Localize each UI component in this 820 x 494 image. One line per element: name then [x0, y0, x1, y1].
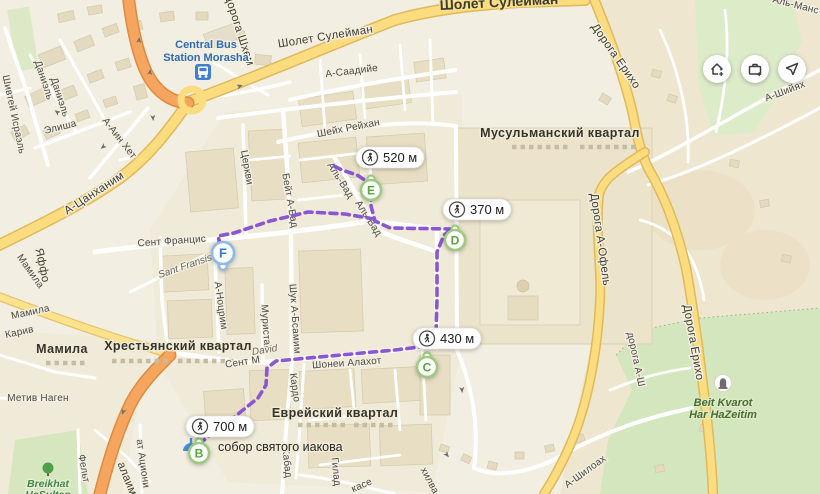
temple-mount-plaza [456, 128, 652, 344]
distance-badge-430[interactable]: 430 м [413, 328, 481, 349]
svg-text:370 м: 370 м [470, 202, 504, 217]
pedestrian-icon [193, 419, 208, 434]
bus-icon[interactable] [195, 64, 211, 80]
map-canvas[interactable]: Шолет Сулейман Шолет Сулейман Дорога Шхе… [0, 0, 820, 494]
add-work-button[interactable] [741, 55, 769, 83]
add-home-button[interactable] [703, 55, 731, 83]
distance-badge-700[interactable]: 700 м [186, 416, 254, 437]
district-label-jewish-quarter: Еврейский квартал [272, 406, 398, 420]
svg-text:430 м: 430 м [440, 331, 474, 346]
tombstone-icon [715, 375, 732, 392]
beit-kvarot-label-line2: Har HaZeitim [689, 409, 757, 421]
locate-button[interactable] [778, 55, 806, 83]
bus-station-label-line2: Station Morasha [163, 52, 249, 64]
svg-text:C: C [423, 361, 432, 375]
district-label-christian-quarter: Хрестьянский квартал [104, 339, 252, 353]
distance-badge-370[interactable]: 370 м [443, 199, 511, 220]
district-label-mamilla: Мамила [36, 342, 88, 356]
pedestrian-icon [420, 331, 435, 346]
svg-text:F: F [219, 246, 227, 261]
pedestrian-icon [363, 150, 378, 165]
cathedral-label: собор святого иакова [218, 440, 343, 454]
breikhat-label-line2: HaSultan [25, 489, 71, 494]
street-label: Метив Наген [7, 393, 68, 404]
district-label-muslim-quarter: Мусульманский квартал [480, 126, 640, 140]
svg-text:D: D [451, 234, 460, 248]
svg-text:E: E [367, 184, 375, 198]
map-controls [703, 55, 806, 83]
bus-station-label-line1: Central Bus [175, 39, 237, 51]
pedestrian-icon [450, 202, 465, 217]
svg-text:B: B [195, 447, 204, 461]
beit-kvarot-label-line1: Beit Kvarot [694, 397, 754, 409]
distance-badge-520[interactable]: 520 м [356, 147, 424, 168]
svg-text:520 м: 520 м [383, 150, 417, 165]
hill-shade [720, 230, 810, 300]
svg-text:700 м: 700 м [213, 419, 247, 434]
